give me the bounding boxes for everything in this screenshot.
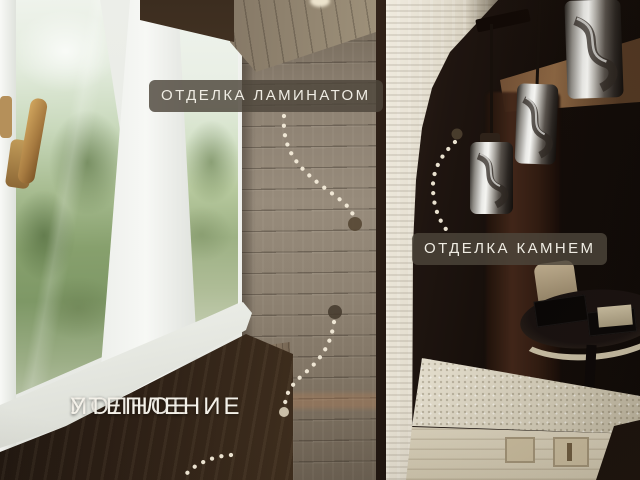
dotted-line-insulation — [285, 322, 334, 404]
marker-dot-laminate — [348, 217, 362, 231]
marker-dot-stone — [452, 129, 463, 140]
dotted-line-stone — [433, 142, 455, 232]
dotted-line-laminate — [284, 116, 353, 215]
dotted-line-floor — [183, 455, 231, 480]
label-stone: ОТДЕЛКА КАМНЕМ — [412, 233, 607, 265]
marker-dot-insulation — [328, 305, 342, 319]
photo-balcony-renovation: ОТДЕЛКА ЛАМИНАТОМ ОТДЕЛКА КАМНЕМ ПОЛНОЕ … — [0, 0, 640, 480]
marker-dot-insulation-end — [279, 407, 289, 417]
label-laminate: ОТДЕЛКА ЛАМИНАТОМ — [149, 80, 383, 112]
label-insulation-line2: УТЕПЛЕНИЕ — [70, 393, 243, 420]
